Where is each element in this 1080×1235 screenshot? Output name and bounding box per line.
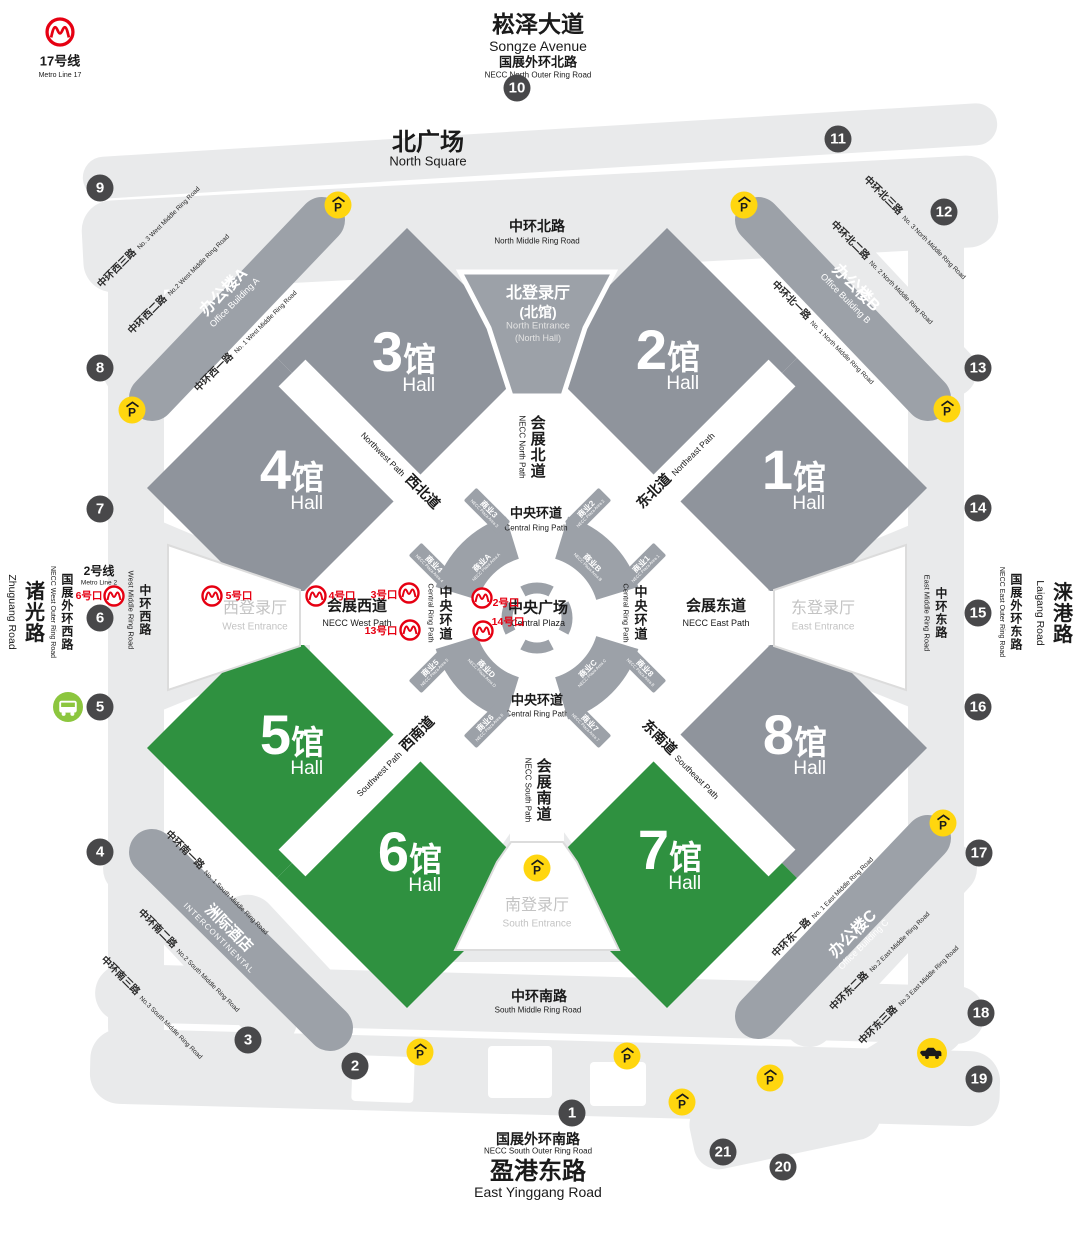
map-marker-14: 14	[965, 495, 992, 522]
map-marker-21: 21	[710, 1139, 737, 1166]
metro-line17-label: 17号线	[40, 55, 80, 70]
west-entrance-label-en: West Entrance	[222, 621, 287, 633]
map-marker-20: 20	[770, 1154, 797, 1181]
metro-line2-label: 2号线	[84, 565, 115, 579]
hall-4-label: 4馆Hall	[260, 445, 324, 515]
north-entrance-label-en: North Entrance	[506, 322, 570, 333]
taxi-icon	[917, 1038, 947, 1068]
parking-icon: P	[930, 810, 957, 837]
north-square-label-en: North Square	[389, 155, 466, 170]
metro-logo-icon	[399, 619, 421, 641]
parking-icon: P	[407, 1039, 434, 1066]
metro-exit-4-label: 4号口	[329, 590, 356, 602]
necc-north-path-label: 会展北道	[528, 415, 545, 479]
parking-icon: P	[119, 397, 146, 424]
necc-east-path-label-en: NECC East Path	[682, 618, 749, 628]
map-marker-1: 1	[559, 1100, 586, 1127]
metro-exit-5-label: 5号口	[226, 590, 253, 602]
metro-exit-3-label: 3号口	[371, 589, 398, 601]
south-middle-ring-label-en: South Middle Ring Road	[495, 1005, 582, 1014]
map-marker-17: 17	[966, 840, 993, 867]
metro-exit-13-label: 13号口	[365, 625, 398, 637]
central-ring-top-label: 中央环道	[510, 507, 562, 522]
central-ring-right-label: 中央环道	[632, 585, 647, 641]
necc-south-path-label: 会展南道	[534, 758, 551, 822]
north-entrance-label2: (北馆)	[519, 304, 556, 320]
north-outer-ring-label-en: NECC North Outer Ring Road	[485, 70, 592, 79]
zhuguang-road-label-en: Zhuguang Road	[6, 574, 18, 649]
parking-icon: P	[325, 192, 352, 219]
map-marker-7: 7	[87, 496, 114, 523]
central-ring-right-label-en: Central Ring Path	[621, 583, 630, 642]
bus-stop-icon	[53, 692, 83, 722]
parking-icon: P	[934, 396, 961, 423]
map-marker-6: 6	[87, 605, 114, 632]
west-entrance-label: 西登录厅	[223, 600, 287, 618]
central-ring-left-label-en: Central Ring Path	[426, 583, 435, 642]
east-outer-ring-label-en: NECC East Outer Ring Road	[997, 567, 1005, 657]
map-marker-15: 15	[965, 600, 992, 627]
map-marker-19: 19	[966, 1066, 993, 1093]
hall-8-label: 8馆Hall	[763, 710, 827, 780]
map-marker-5: 5	[87, 694, 114, 721]
west-outer-ring-label: 国展外环西路	[59, 573, 73, 651]
necc-south-path-label-en: NECC South Path	[523, 758, 532, 822]
laigang-road-label: 涞港路	[1049, 582, 1072, 645]
map-marker-3: 3	[235, 1027, 262, 1054]
map-marker-10: 10	[504, 75, 531, 102]
metro-logo-icon	[471, 587, 493, 609]
map-marker-4: 4	[87, 839, 114, 866]
songze-avenue-label: 崧泽大道	[492, 11, 584, 37]
laigang-road-label-en: Laigang Road	[1034, 580, 1046, 645]
yinggang-road-label-en: East Yinggang Road	[474, 1184, 602, 1200]
metro-logo-icon	[103, 585, 125, 607]
yinggang-road-label: 盈港东路	[490, 1158, 586, 1186]
metro-exit-2-label: 2号口	[493, 597, 520, 609]
map-marker-9: 9	[87, 175, 114, 202]
necc-north-path-label-en: NECC North Path	[517, 415, 526, 478]
north-middle-ring-label: 中环北路	[509, 218, 565, 234]
south-outer-ring-label-en: NECC South Outer Ring Road	[484, 1146, 592, 1155]
metro-logo-icon	[398, 582, 420, 604]
parking-icon: P	[614, 1043, 641, 1070]
necc-venue-map: 17号线 Metro Line 17 崧泽大道 Songze Avenue 国展…	[0, 0, 1080, 1235]
map-marker-13: 13	[965, 355, 992, 382]
south-middle-ring-label: 中环南路	[511, 988, 567, 1004]
map-marker-8: 8	[87, 355, 114, 382]
hall-1-label: 1馆Hall	[762, 445, 826, 515]
songze-avenue-label-en: Songze Avenue	[489, 38, 587, 54]
west-middle-ring-label-en: West Middle Ring Road	[126, 571, 135, 650]
south-entrance-label-en: South Entrance	[503, 918, 572, 930]
metro-logo-icon	[472, 620, 494, 642]
west-middle-ring-label: 中环西路	[137, 584, 151, 636]
parking-icon: P	[757, 1065, 784, 1092]
metro-logo-icon	[201, 585, 223, 607]
hall-7-label: 7馆Hall	[638, 825, 702, 895]
north-entrance-label-en2: (North Hall)	[515, 333, 561, 343]
central-ring-bottom-label-en: Central Ring Path	[505, 709, 568, 718]
east-middle-ring-label-en: East Middle Ring Road	[922, 575, 931, 652]
west-outer-ring-label-en: NECC West Outer Ring Road	[48, 566, 56, 658]
central-ring-bottom-label: 中央环道	[511, 694, 563, 709]
metro-logo-icon	[45, 17, 75, 47]
hall-5-label: 5馆Hall	[260, 710, 324, 780]
metro-line17-label-en: Metro Line 17	[39, 72, 82, 80]
parking-icon: P	[731, 192, 758, 219]
parking-icon: P	[524, 855, 551, 882]
east-middle-ring-label: 中环东路	[933, 587, 947, 639]
metro-exit-14-label: 14号口	[492, 616, 525, 628]
east-entrance-label-en: East Entrance	[792, 621, 855, 633]
zhuguang-road-label: 诸光路	[21, 581, 44, 644]
south-entrance-label: 南登录厅	[505, 897, 569, 915]
central-ring-top-label-en: Central Ring Path	[504, 523, 567, 532]
metro-exit-6-label: 6号口	[76, 590, 103, 602]
hall-2-label: 2馆Hall	[636, 325, 700, 395]
hall-3-label: 3馆Hall	[372, 327, 436, 397]
north-entrance-label: 北登录厅	[506, 285, 570, 303]
map-marker-11: 11	[825, 126, 852, 153]
central-ring-left-label: 中央环道	[437, 585, 452, 641]
map-marker-18: 18	[968, 1000, 995, 1027]
map-marker-16: 16	[965, 694, 992, 721]
east-outer-ring-label: 国展外环东路	[1008, 573, 1022, 651]
map-marker-12: 12	[931, 199, 958, 226]
necc-east-path-label: 会展东道	[686, 597, 746, 614]
north-middle-ring-label-en: North Middle Ring Road	[494, 236, 579, 245]
south-outer-ring-label: 国展外环南路	[496, 1131, 580, 1147]
hall-6-label: 6馆Hall	[378, 827, 442, 897]
parking-icon: P	[669, 1089, 696, 1116]
metro-logo-icon	[305, 585, 327, 607]
east-entrance-label: 东登录厅	[791, 600, 855, 618]
map-marker-2: 2	[342, 1053, 369, 1080]
north-outer-ring-label: 国展外环北路	[499, 56, 577, 71]
